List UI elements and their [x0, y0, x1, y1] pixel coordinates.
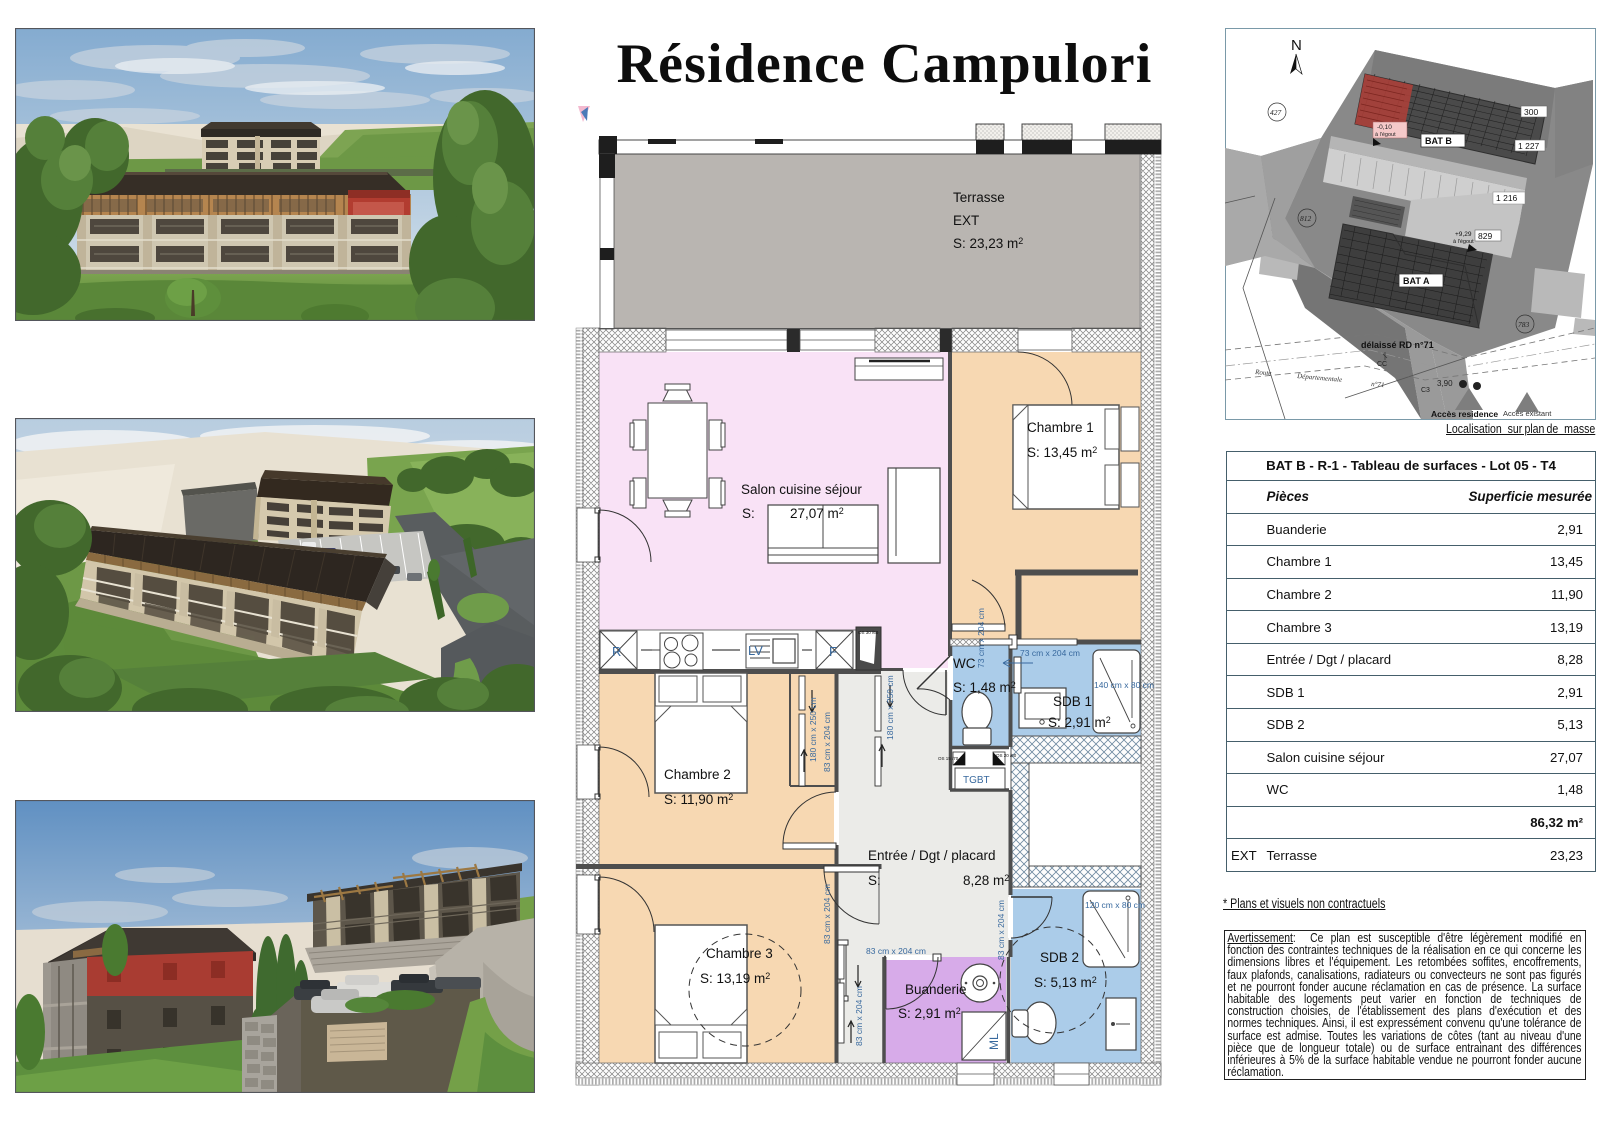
svg-text:S:: S:: [868, 873, 881, 888]
svg-text:140 cm x 80 cm: 140 cm x 80 cm: [1094, 680, 1154, 690]
svg-text:à l'égout: à l'égout: [1453, 239, 1474, 245]
svg-text:S: 13,19 m2: S: 13,19 m2: [700, 971, 770, 986]
svg-text:BAT B: BAT B: [1425, 136, 1452, 146]
svg-text:R: R: [612, 644, 621, 659]
svg-text:180 cm x 250 cm: 180 cm x 250 cm: [808, 697, 818, 762]
svg-text:S: 5,13 m2: S: 5,13 m2: [1034, 975, 1097, 990]
svg-text:Chambre 2: Chambre 2: [664, 767, 731, 782]
svg-text:829: 829: [1478, 231, 1492, 241]
svg-text:Salon cuisine séjour: Salon cuisine séjour: [741, 482, 862, 497]
svg-text:WC: WC: [953, 656, 976, 671]
svg-text:Accès existant: Accès existant: [1503, 409, 1552, 418]
svg-text:3,90: 3,90: [1437, 379, 1453, 388]
svg-text:Buanderie: Buanderie: [905, 982, 967, 997]
svg-text:SDB 2: SDB 2: [1040, 950, 1079, 965]
svg-text:OS 15 /70: OS 15 /70: [938, 756, 959, 761]
svg-text:S: 2,91 m2: S: 2,91 m2: [1048, 715, 1111, 730]
svg-text:SDB 1: SDB 1: [1053, 694, 1092, 709]
svg-text:1 227: 1 227: [1518, 141, 1540, 151]
svg-text:CC: CC: [1377, 361, 1387, 368]
svg-text:120 cm x 80 cm: 120 cm x 80 cm: [1085, 900, 1145, 910]
svg-text:427: 427: [1270, 108, 1282, 117]
svg-text:S: 23,23 m2: S: 23,23 m2: [953, 236, 1023, 251]
svg-text:83 cm x 204 cm: 83 cm x 204 cm: [822, 884, 832, 944]
svg-text:EXT: EXT: [953, 213, 979, 228]
svg-text:délaissé RD n°71: délaissé RD n°71: [1361, 340, 1434, 350]
svg-text:à l'égout: à l'égout: [1375, 132, 1396, 138]
svg-text:73 cm x 204 cm: 73 cm x 204 cm: [1020, 648, 1080, 658]
svg-text:1 216: 1 216: [1496, 193, 1518, 203]
svg-text:-0,10: -0,10: [1377, 124, 1392, 131]
svg-text:83 cm x 204 cm: 83 cm x 204 cm: [866, 946, 926, 956]
svg-text:Chambre 3: Chambre 3: [706, 946, 773, 961]
svg-text:S: 13,45 m2: S: 13,45 m2: [1027, 445, 1097, 460]
svg-text:83 cm x 204 cm: 83 cm x 204 cm: [822, 712, 832, 772]
svg-text:N: N: [1291, 37, 1302, 54]
svg-text:Entrée / Dgt / placard: Entrée / Dgt / placard: [868, 848, 996, 863]
svg-text:812: 812: [1300, 214, 1312, 223]
svg-text:OS 30 /60: OS 30 /60: [858, 630, 879, 635]
svg-text:TGBT: TGBT: [963, 775, 990, 786]
svg-text:S:: S:: [742, 506, 755, 521]
svg-text:180 cm x 250 cm: 180 cm x 250 cm: [885, 675, 895, 740]
svg-text:n°71: n°71: [1371, 380, 1385, 389]
svg-text:BAT A: BAT A: [1403, 276, 1430, 286]
svg-text:8,28 m2: 8,28 m2: [963, 873, 1009, 888]
svg-text:F: F: [829, 644, 837, 659]
svg-text:ML: ML: [987, 1033, 1001, 1050]
svg-text:73 cm x 204 cm: 73 cm x 204 cm: [976, 608, 986, 668]
svg-text:S: 2,91 m2: S: 2,91 m2: [898, 1006, 961, 1021]
svg-text:S: 1,48 m2: S: 1,48 m2: [953, 680, 1016, 695]
svg-text:S: 11,90 m2: S: 11,90 m2: [664, 792, 733, 807]
svg-text:27,07 m2: 27,07 m2: [790, 506, 844, 521]
svg-text:Accès residence: Accès residence: [1431, 409, 1498, 419]
svg-text:300: 300: [1524, 107, 1538, 117]
svg-text:Terrasse: Terrasse: [953, 190, 1005, 205]
svg-text:Route: Route: [1254, 368, 1272, 377]
svg-text:LV: LV: [748, 643, 763, 658]
svg-text:C3: C3: [1421, 387, 1430, 394]
svg-text:+9,29: +9,29: [1455, 231, 1472, 238]
svg-text:783: 783: [1518, 320, 1530, 329]
svg-text:Chambre 1: Chambre 1: [1027, 420, 1094, 435]
svg-text:OS 20 /60: OS 20 /60: [996, 753, 1017, 758]
svg-text:83 cm x 204 cm: 83 cm x 204 cm: [854, 986, 864, 1046]
svg-text:83 cm x 204 cm: 83 cm x 204 cm: [996, 900, 1006, 960]
